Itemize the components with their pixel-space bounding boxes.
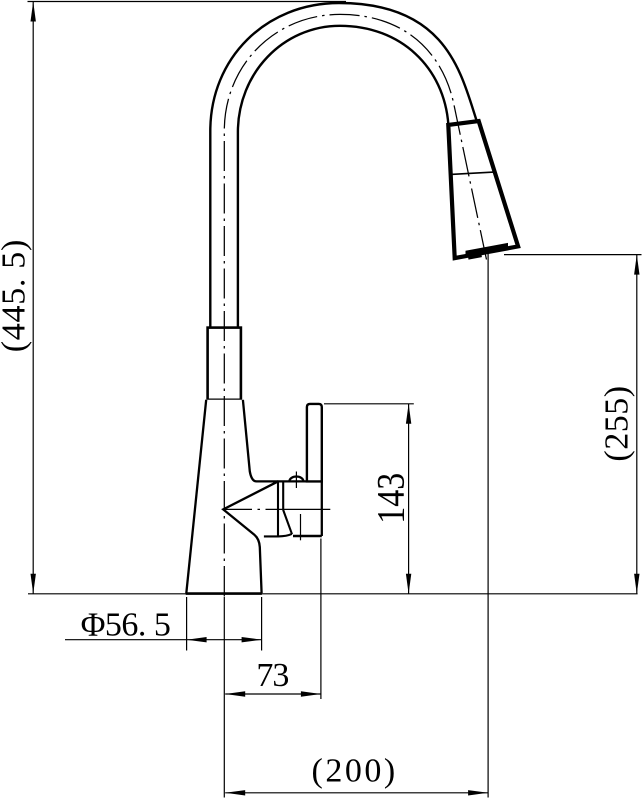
- svg-text:(200): (200): [312, 753, 398, 790]
- svg-text:(255): (255): [599, 385, 636, 461]
- svg-text:Φ56. 5: Φ56. 5: [81, 607, 171, 644]
- svg-text:73: 73: [256, 657, 288, 694]
- svg-text:143: 143: [368, 473, 412, 524]
- svg-text:(445. 5): (445. 5): [0, 239, 33, 352]
